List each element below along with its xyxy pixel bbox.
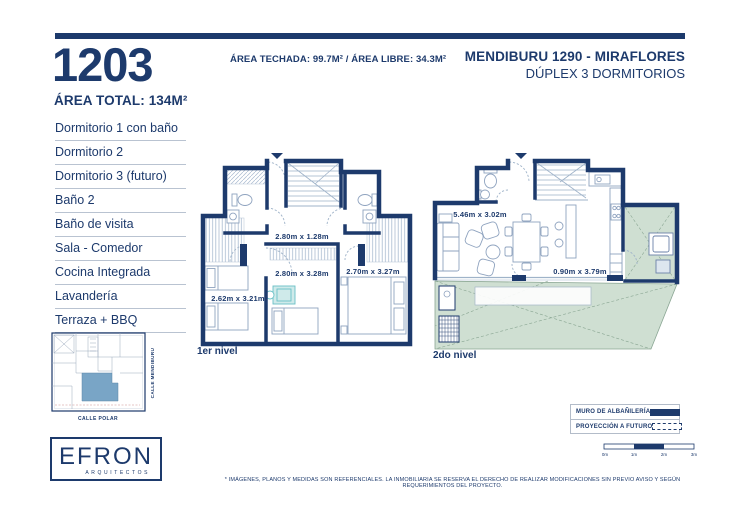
wall-stub: [512, 275, 526, 281]
legend-row: MURO DE ALBAÑILERÍA: [571, 405, 679, 419]
bed: [205, 266, 248, 290]
sofa-icon: [437, 214, 459, 271]
efron-logo: EFRON ARQUITECTOS: [50, 437, 162, 481]
bathroom-fixtures: [477, 168, 497, 199]
bed: [272, 308, 318, 334]
scale-tick: 0m: [602, 452, 608, 457]
bbq-grill-icon: [439, 316, 459, 342]
level1-label: 1er nivel: [197, 346, 238, 357]
toilet-icon: [358, 194, 377, 206]
desk-icon: [266, 286, 295, 304]
room-list-item: Dormitorio 3 (futuro): [55, 166, 186, 189]
scale-tick: 3m: [691, 452, 698, 457]
sink-icon: [227, 210, 239, 223]
dim-label: 2.70m x 3.27m: [346, 267, 400, 276]
room-list-item: Terraza + BBQ: [55, 310, 186, 333]
room-list-item: Sala - Comedor: [55, 238, 186, 261]
project-title-block: MENDIBURU 1290 - MIRAFLORES DÚPLEX 3 DOR…: [465, 49, 685, 81]
armchair-icon: [464, 229, 484, 249]
room-list-item: Cocina Integrada: [55, 262, 186, 285]
wall-stub: [358, 244, 365, 266]
sink-icon: [363, 210, 376, 223]
stool-icon: [555, 239, 563, 247]
toilet-icon: [484, 168, 497, 188]
fridge-icon: [610, 254, 622, 272]
wall-stub: [240, 244, 247, 266]
dim-label: 5.46m x 3.02m: [453, 210, 507, 219]
dim-label: 2.80m x 3.28m: [275, 269, 329, 278]
washer-icon: [649, 233, 673, 255]
laundry-sink-icon: [656, 260, 670, 273]
armchair-icon: [476, 258, 495, 276]
side-table-icon: [486, 245, 500, 259]
wall-stub: [607, 275, 623, 281]
room-list-item: Baño 2: [55, 190, 186, 213]
bed: [205, 303, 248, 330]
bathroom-fixtures: [227, 194, 377, 223]
room-list-item: Dormitorio 1 con baño: [55, 118, 186, 141]
solid-wall-swatch: [650, 409, 680, 416]
glass-door: [435, 278, 623, 281]
double-bed: [348, 277, 406, 334]
dashed-projection-swatch: [652, 423, 682, 430]
floor-plan-level2: 5.46m x 3.02m 0.90m x 3.79m: [428, 148, 688, 360]
room-list: Dormitorio 1 con baño Dormitorio 2 Dormi…: [55, 118, 186, 334]
disclaimer: * IMÁGENES, PLANOS Y MEDIDAS SON REFEREN…: [205, 477, 700, 489]
stool-icon: [555, 222, 563, 230]
room-list-item: Lavandería: [55, 286, 186, 309]
scale-tick: 1m: [631, 452, 638, 457]
project-subtitle: DÚPLEX 3 DORMITORIOS: [465, 66, 685, 81]
legend-label-muro: MURO DE ALBAÑILERÍA: [576, 409, 650, 415]
project-title: MENDIBURU 1290 - MIRAFLORES: [465, 49, 685, 64]
kitchen-island: [566, 205, 576, 258]
room-list-item: Dormitorio 2: [55, 142, 186, 165]
scale-bar: 0m 1m 2m 3m: [602, 441, 702, 459]
nightstand-icon: [341, 277, 347, 285]
legend: MURO DE ALBAÑILERÍA PROYECCIÓN A FUTURO: [570, 404, 680, 434]
dim-label: 0.90m x 3.79m: [553, 267, 607, 276]
entry-arrow-icon: [271, 153, 283, 159]
dim-label: 2.62m x 3.21m: [211, 294, 265, 303]
floor-plan-level1: 2.80m x 1.28m 2.62m x 3.21m 2.80m x 3.28…: [195, 148, 420, 353]
room-list-item: Baño de visita: [55, 214, 186, 237]
logo-tagline: ARQUITECTOS: [52, 470, 160, 476]
toilet-icon: [232, 194, 252, 206]
unit-area-total: ÁREA TOTAL: 134M²: [54, 93, 187, 108]
legend-row: PROYECCIÓN A FUTURO: [571, 419, 679, 433]
stairs-icon: [286, 163, 341, 206]
kitchen-fixtures: [555, 172, 622, 276]
logo-brand: EFRON: [52, 445, 160, 469]
level2-label: 2do nivel: [433, 350, 476, 361]
unit-number: 1203: [52, 41, 153, 88]
entry-arrow-icon: [515, 153, 527, 159]
dining-table-icon: [505, 214, 548, 270]
street-label-bottom: CALLE POLAR: [78, 416, 118, 422]
dim-label: 2.80m x 1.28m: [275, 232, 329, 241]
living-furniture: [437, 214, 548, 277]
legend-label-proyeccion: PROYECCIÓN A FUTURO: [576, 424, 652, 430]
nightstand-icon: [341, 326, 347, 334]
stove-icon: [611, 204, 621, 220]
site-map: CALLE MENDIBURU CALLE POLAR: [50, 331, 165, 423]
shower-icon: [227, 170, 265, 184]
street-label-right: CALLE MENDIBURU: [150, 347, 155, 398]
kitchen-sink-icon: [595, 175, 610, 184]
areas-line: ÁREA TECHADA: 99.7M² / ÁREA LIBRE: 34.3M…: [230, 54, 446, 65]
stairs-icon: [535, 163, 588, 200]
scale-tick: 2m: [661, 452, 668, 457]
